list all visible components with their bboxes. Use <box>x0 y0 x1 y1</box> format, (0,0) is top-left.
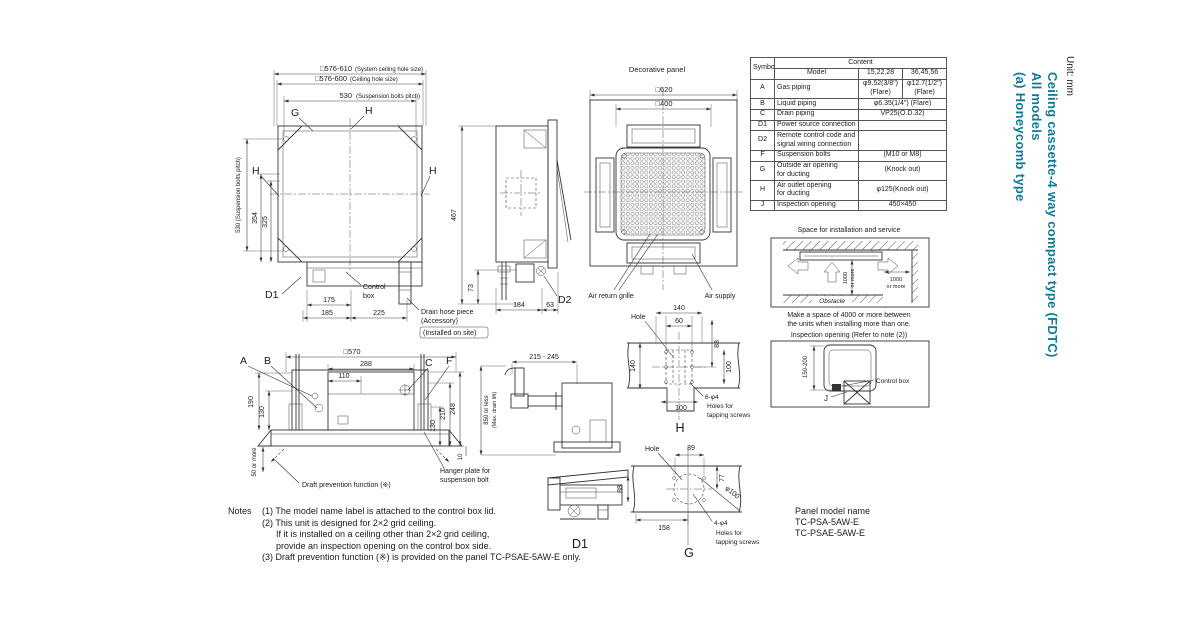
row-name: Liquid piping <box>775 99 859 110</box>
row-value-2: φ12.7(1/2") (Flare) <box>903 79 947 99</box>
label-a: A <box>240 355 247 367</box>
h-hole-detail: Hole 140 60 88 140 100 100 6-φ4 Holes fo… <box>627 305 751 435</box>
table-row: F Suspension bolts (M10 or M8) <box>751 150 947 161</box>
dim-10: 10 <box>458 453 464 460</box>
page-title: Ceiling cassette-4 way compact type (FDT… <box>1012 72 1060 552</box>
table-row: A Gas piping φ9.52(3/8") (Flare) φ12.7(1… <box>751 79 947 99</box>
dim-190: 190 <box>248 396 255 408</box>
row-value: 450×450 <box>859 200 947 211</box>
notes-label: Notes <box>228 506 262 518</box>
table-row: B Liquid piping φ6.35(1/4") (Flare) <box>751 99 947 110</box>
row-name: Outside air opening for ducting <box>775 161 859 181</box>
row-name: Gas piping <box>775 79 859 99</box>
h-dim-88: 88 <box>714 340 721 348</box>
space-dim-1000-b: 1000 <box>890 277 902 283</box>
space-for-installation-view: Space for installation and service 1000 … <box>771 227 929 328</box>
row-value-1: φ9.52(3/8") (Flare) <box>859 79 903 99</box>
note-line: provide an inspection opening on the con… <box>228 541 588 553</box>
table-row: H Air outlet opening for ducting φ125(Kn… <box>751 181 947 201</box>
drain-hose-label-2: (Accessory) <box>421 318 458 325</box>
dim-288: 288 <box>360 361 372 368</box>
row-value: φ125(Knock out) <box>859 181 947 201</box>
inspect-control-box-label: Control box <box>876 378 910 385</box>
row-symbol: H <box>751 181 775 201</box>
row-name: Air outlet opening for ducting <box>775 181 859 201</box>
row-value <box>859 131 947 151</box>
label-j: J <box>824 394 828 403</box>
drawing-sheet: □576-610 (System ceiling hole size) □576… <box>0 0 1200 617</box>
row-symbol: B <box>751 99 775 110</box>
label-f: F <box>446 355 452 367</box>
dim-pitch-note: (Suspension bolts pitch) <box>356 94 420 100</box>
label-h-left: H <box>252 165 260 177</box>
table-row: D1 Power source connection <box>751 120 947 131</box>
table-row: C Drain piping VP25(O.D.32) <box>751 109 947 120</box>
table-header-row: Symbol Content <box>751 58 947 69</box>
row-value: (Knock out) <box>859 161 947 181</box>
h-screws-1: 6-φ4 <box>705 394 719 401</box>
g-screws-1: 4-φ4 <box>714 520 728 527</box>
label-g: G <box>291 107 299 119</box>
spec-table: Symbol Content Model 15,22,28 36,45,56 A… <box>750 57 947 211</box>
col-header-model-1: 15,22,28 <box>859 68 903 79</box>
h-dim-60: 60 <box>675 318 683 325</box>
dim-73: 73 <box>468 284 475 292</box>
space-caption-2: the units when installing more than one. <box>787 321 910 328</box>
dim-620: □620 <box>655 85 672 94</box>
obstacle-label: Obstacle <box>819 298 845 305</box>
dim-150-200: 150-200 <box>803 355 809 378</box>
dim-215-245: 215 - 245 <box>529 354 559 361</box>
h-dim-100-right: 100 <box>726 361 733 373</box>
row-symbol: D2 <box>751 131 775 151</box>
row-name: Drain piping <box>775 109 859 120</box>
row-value: (M10 or M8) <box>859 150 947 161</box>
h-dim-140-left: 140 <box>630 360 637 372</box>
label-h-right: H <box>429 165 437 177</box>
hanger-plate-label-2: suspension bolt <box>440 477 489 484</box>
dim-354: 354 <box>252 212 259 224</box>
dim-pitch: 530 <box>339 91 352 100</box>
dim-50-or-more: 50 or more <box>252 447 258 477</box>
row-symbol: C <box>751 109 775 120</box>
col-header-model-2: 36,45,56 <box>903 68 947 79</box>
table-model-row: Model 15,22,28 36,45,56 <box>751 68 947 79</box>
notes-block: Notes (1) The model name label is attach… <box>228 506 588 564</box>
dim-850-or-less: 850 or less <box>484 395 490 424</box>
col-header-symbol: Symbol <box>751 58 775 80</box>
g-dim-89: 89 <box>687 445 695 452</box>
dim-184: 184 <box>513 302 525 309</box>
space-dim-1000-b2: or more <box>887 284 906 290</box>
hanger-plate-label-1: Hanger plate for <box>440 468 491 475</box>
label-d1: D1 <box>265 289 279 301</box>
page-title-line-1: Ceiling cassette-4 way compact type (FDT… <box>1044 72 1060 552</box>
dim-210: 210 <box>440 408 447 420</box>
draft-prevention-label: Draft prevention function (※) <box>302 482 391 489</box>
control-box-label-2: box <box>363 293 375 300</box>
row-name: Remote control code and signal wiring co… <box>775 131 859 151</box>
row-symbol: G <box>751 161 775 181</box>
page-title-line-2: All models <box>1028 72 1044 552</box>
dim-467: 467 <box>451 209 458 221</box>
dim-325: 325 <box>262 216 269 228</box>
air-return-grille-label: Air return grille <box>588 293 634 300</box>
note-line: (1) The model name label is attached to … <box>262 506 496 518</box>
dim-130-left: 130 <box>259 406 266 418</box>
label-b: B <box>264 355 271 367</box>
space-title: Space for installation and service <box>798 227 901 234</box>
drain-hose-label-3: (Installed on site) <box>423 330 476 337</box>
g-hole-label: Hole <box>645 446 660 453</box>
dim-system-hole: □576-610 <box>320 64 352 73</box>
space-dim-1000-a: 1000 <box>843 272 849 284</box>
row-value <box>859 120 947 131</box>
g-dim-88: 88 <box>617 485 624 493</box>
drain-lift-view: 215 - 245 850 or less (Max. drain lift) <box>481 354 620 455</box>
inspection-opening-view: Inspection opening (Refer to note (2)) 1… <box>771 332 929 407</box>
dim-pitch-vertical: 530 (Suspension bolts pitch) <box>236 157 242 233</box>
space-dim-1000-a2: or more <box>850 269 856 288</box>
label-d2: D2 <box>558 294 572 306</box>
panel-model-title: Panel model name <box>795 506 870 517</box>
h-view-label: H <box>675 421 684 435</box>
col-header-model: Model <box>775 68 859 79</box>
note-line: (3) Draft prevention function (※) is pro… <box>228 552 588 564</box>
g-dim-100: φ100 <box>723 485 740 501</box>
unit-note: Unit: mm <box>1064 56 1075 96</box>
col-header-content: Content <box>775 58 947 69</box>
dim-system-hole-note: (System ceiling hole size) <box>355 67 423 73</box>
dim-850-note: (Max. drain lift) <box>492 392 498 429</box>
dim-175: 175 <box>323 297 335 304</box>
row-symbol: A <box>751 79 775 99</box>
dim-248: 248 <box>450 403 457 415</box>
row-value: VP25(O.D.32) <box>859 109 947 120</box>
h-hole-label: Hole <box>631 314 646 321</box>
label-c: C <box>425 357 433 369</box>
h-screws-3: tapping screws <box>707 412 751 419</box>
label-h-top: H <box>365 105 373 117</box>
g-hole-detail: Hole 89 77 88 φ100 158 4-φ4 Holes for ta… <box>617 445 760 560</box>
dim-63: 63 <box>546 302 554 309</box>
table-row: D2 Remote control code and signal wiring… <box>751 131 947 151</box>
g-view-label: G <box>684 546 694 560</box>
dim-130-right: 130 <box>430 420 437 432</box>
dim-225: 225 <box>373 310 385 317</box>
row-symbol: J <box>751 200 775 211</box>
h-screws-2: Holes for <box>707 403 734 410</box>
row-name: Power source connection <box>775 120 859 131</box>
row-name: Suspension bolts <box>775 150 859 161</box>
decorative-panel-title: Decorative panel <box>629 65 686 74</box>
table-row: J Inspection opening 450×450 <box>751 200 947 211</box>
g-screws-3: tapping screws <box>716 539 760 546</box>
row-symbol: F <box>751 150 775 161</box>
row-value: φ6.35(1/4") (Flare) <box>859 99 947 110</box>
panel-model-1: TC-PSA-5AW-E <box>795 517 870 528</box>
decorative-panel-view: Decorative panel □620 □400 Air return gr… <box>584 65 743 300</box>
inspection-title: Inspection opening (Refer to note (2)) <box>791 332 907 339</box>
dim-185: 185 <box>321 310 333 317</box>
air-supply-label: Air supply <box>705 293 736 300</box>
g-dim-158: 158 <box>658 525 670 532</box>
g-screws-2: Holes for <box>716 530 743 537</box>
row-name: Inspection opening <box>775 200 859 211</box>
drain-hose-label-1: Drain hose piece <box>421 309 474 316</box>
table-row: G Outside air opening for ducting (Knock… <box>751 161 947 181</box>
g-dim-77: 77 <box>719 474 726 482</box>
row-symbol: D1 <box>751 120 775 131</box>
space-caption-1: Make a space of 4000 or more between <box>787 312 910 319</box>
h-dim-100-bottom: 100 <box>675 405 687 412</box>
panel-model-2: TC-PSAE-5AW-E <box>795 528 870 539</box>
note-line: If it is installed on a ceiling other th… <box>228 529 588 541</box>
panel-model-block: Panel model name TC-PSA-5AW-E TC-PSAE-5A… <box>795 506 870 539</box>
dim-ceiling-hole-note: (Ceiling hole size) <box>350 77 398 83</box>
page-title-line-3: (a) Honeycomb type <box>1012 72 1028 552</box>
dim-110: 110 <box>338 373 349 380</box>
elevation-view: □570 288 110 A B C F 1 <box>240 347 491 489</box>
note-line: (2) This unit is designed for 2×2 grid c… <box>228 518 588 530</box>
dim-570: □570 <box>343 347 360 356</box>
dim-ceiling-hole: □576-600 <box>315 74 347 83</box>
side-view: 184 63 D2 <box>496 120 572 314</box>
h-dim-140-top: 140 <box>673 305 685 312</box>
control-box-label-1: Control <box>363 284 386 291</box>
plan-view: □576-610 (System ceiling hole size) □576… <box>236 64 520 338</box>
